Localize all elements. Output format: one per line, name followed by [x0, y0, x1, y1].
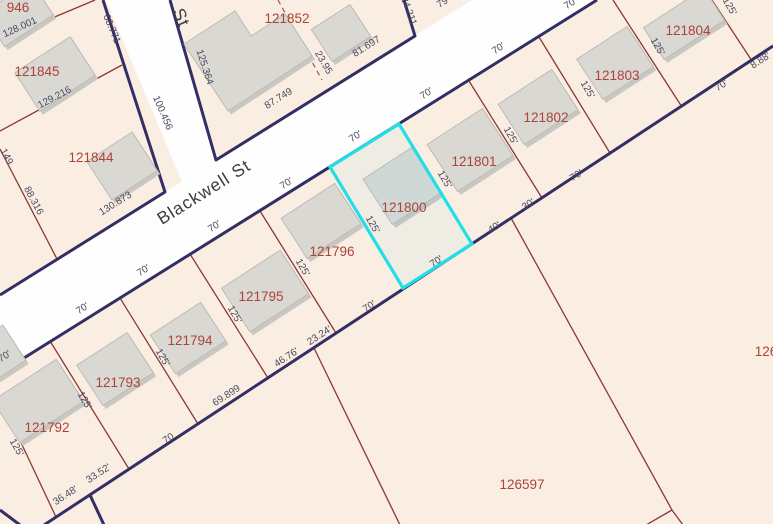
- parcel-label[interactable]: 121792: [24, 420, 69, 435]
- parcel-map-canvas[interactable]: 9461218451218441218521218041218031218021…: [0, 0, 773, 524]
- parcel-label[interactable]: 126: [755, 344, 773, 359]
- parcel-label[interactable]: 121794: [167, 333, 213, 348]
- parcel-label[interactable]: 121804: [665, 23, 711, 38]
- parcel-label[interactable]: 121793: [95, 375, 140, 390]
- parcel-label[interactable]: 121844: [68, 150, 114, 165]
- parcel-label[interactable]: 121852: [264, 11, 309, 26]
- parcel-label[interactable]: 121800: [381, 200, 426, 215]
- parcel-label[interactable]: 121802: [523, 110, 568, 125]
- parcel-label[interactable]: 126597: [499, 477, 544, 492]
- parcel-label[interactable]: 121803: [594, 68, 639, 83]
- parcel-label[interactable]: 946: [7, 0, 30, 15]
- parcel-label[interactable]: 121796: [309, 244, 354, 259]
- parcel-label[interactable]: 121795: [238, 289, 283, 304]
- parcel-label[interactable]: 121845: [14, 64, 59, 79]
- parcel-map-viewport[interactable]: 9461218451218441218521218041218031218021…: [0, 0, 773, 524]
- parcel-label[interactable]: 121801: [451, 154, 496, 169]
